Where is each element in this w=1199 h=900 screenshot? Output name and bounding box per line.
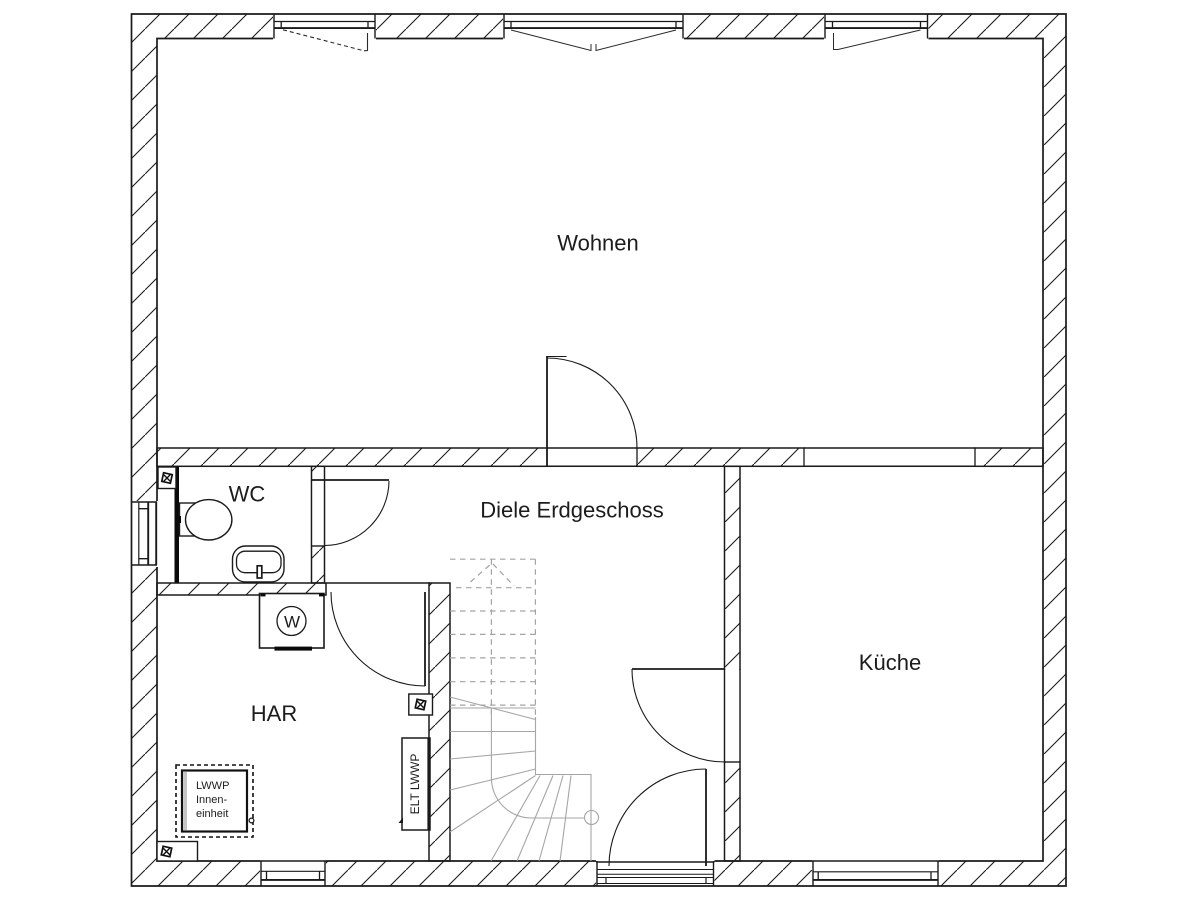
svg-text:ELT LWWP: ELT LWWP <box>408 754 422 815</box>
svg-text:LWWP: LWWP <box>196 780 229 792</box>
svg-text:HAR: HAR <box>251 701 297 726</box>
svg-text:Diele Erdgeschoss: Diele Erdgeschoss <box>480 498 663 523</box>
svg-text:einheit: einheit <box>196 808 228 820</box>
svg-text:WC: WC <box>229 482 266 507</box>
svg-text:Küche: Küche <box>859 650 921 675</box>
svg-text:Innen-: Innen- <box>196 794 228 806</box>
svg-text:Wohnen: Wohnen <box>557 231 639 256</box>
svg-text:W: W <box>284 613 300 632</box>
